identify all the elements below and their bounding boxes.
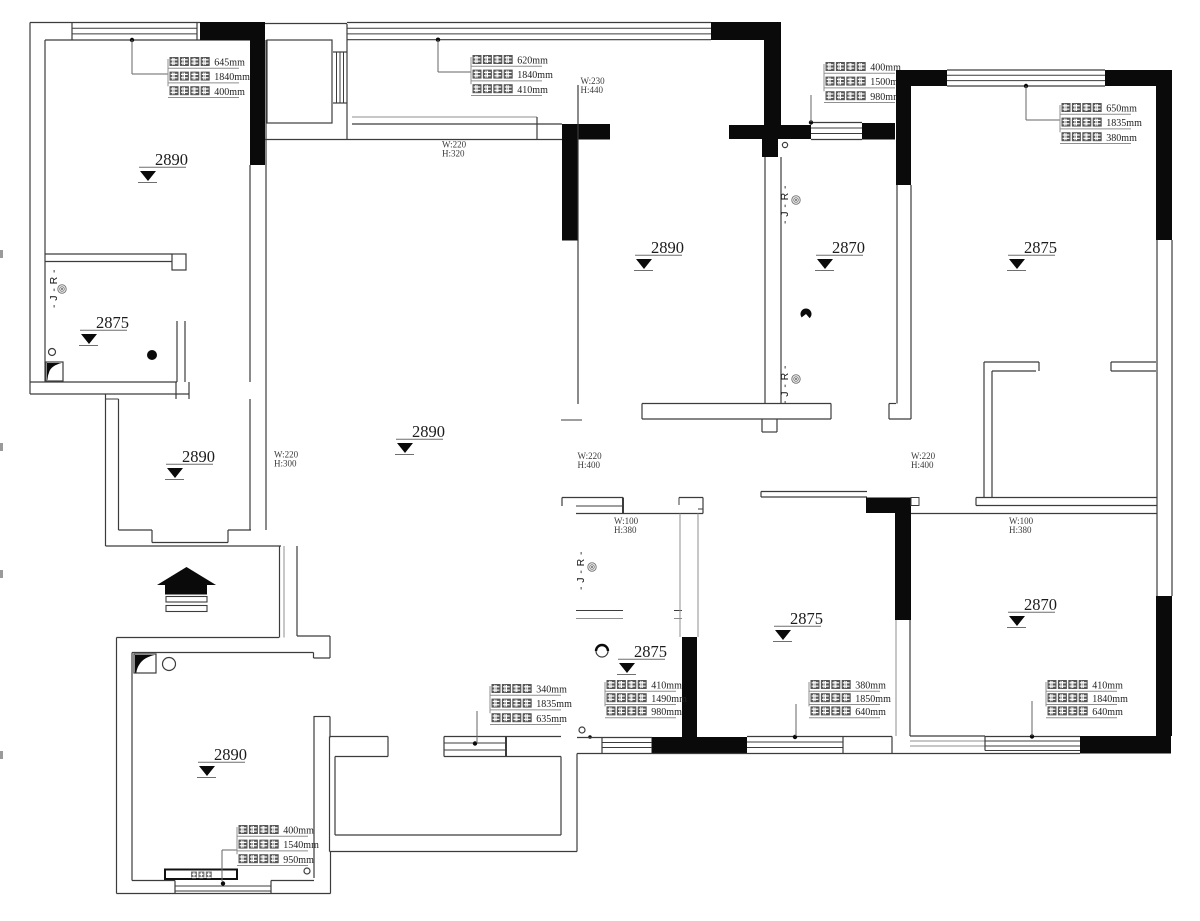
svg-text:H:380: H:380 bbox=[614, 525, 637, 535]
svg-text:640mm: 640mm bbox=[855, 707, 886, 718]
svg-text:1840mm: 1840mm bbox=[214, 72, 250, 83]
svg-text:2875: 2875 bbox=[790, 609, 823, 628]
svg-text:2875: 2875 bbox=[634, 642, 667, 661]
svg-text:H:320: H:320 bbox=[442, 149, 465, 159]
svg-text:2890: 2890 bbox=[651, 238, 684, 257]
svg-text:1840mm: 1840mm bbox=[517, 70, 553, 81]
svg-text:1490mm: 1490mm bbox=[651, 694, 687, 705]
svg-text:2890: 2890 bbox=[412, 422, 445, 441]
svg-text:380mm: 380mm bbox=[855, 681, 886, 692]
svg-text:410mm: 410mm bbox=[1092, 681, 1123, 692]
svg-text:H:440: H:440 bbox=[581, 85, 604, 95]
svg-text:635mm: 635mm bbox=[536, 714, 567, 725]
svg-text:1835mm: 1835mm bbox=[1106, 118, 1142, 129]
svg-text:2870: 2870 bbox=[832, 238, 865, 257]
svg-text:2875: 2875 bbox=[96, 313, 129, 332]
svg-text:H:400: H:400 bbox=[911, 460, 934, 470]
svg-text:2890: 2890 bbox=[182, 447, 215, 466]
svg-text:650mm: 650mm bbox=[1106, 104, 1137, 115]
svg-text:H:380: H:380 bbox=[1009, 525, 1032, 535]
svg-text:1835mm: 1835mm bbox=[536, 699, 572, 710]
svg-text:2875: 2875 bbox=[1024, 238, 1057, 257]
svg-text:2890: 2890 bbox=[214, 745, 247, 764]
svg-text:1840mm: 1840mm bbox=[1092, 694, 1128, 705]
svg-text:640mm: 640mm bbox=[1092, 707, 1123, 718]
svg-text:H:300: H:300 bbox=[274, 459, 297, 469]
svg-text:H:400: H:400 bbox=[578, 460, 601, 470]
svg-text:950mm: 950mm bbox=[283, 855, 314, 866]
svg-text:410mm: 410mm bbox=[517, 85, 548, 96]
svg-text:-J-R-: -J-R- bbox=[575, 548, 587, 590]
svg-text:410mm: 410mm bbox=[651, 681, 682, 692]
svg-text:-J-R-: -J-R- bbox=[779, 362, 791, 404]
svg-text:400mm: 400mm bbox=[283, 826, 314, 837]
svg-text:2870: 2870 bbox=[1024, 595, 1057, 614]
svg-text:1850mm: 1850mm bbox=[855, 694, 891, 705]
svg-text:380mm: 380mm bbox=[1106, 133, 1137, 144]
svg-text:645mm: 645mm bbox=[214, 58, 245, 69]
svg-text:400mm: 400mm bbox=[214, 87, 245, 98]
svg-text:-J-R-: -J-R- bbox=[779, 182, 791, 224]
svg-text:2890: 2890 bbox=[155, 150, 188, 169]
svg-text:340mm: 340mm bbox=[536, 685, 567, 696]
svg-text:620mm: 620mm bbox=[517, 56, 548, 67]
svg-text:980mm: 980mm bbox=[651, 707, 682, 718]
